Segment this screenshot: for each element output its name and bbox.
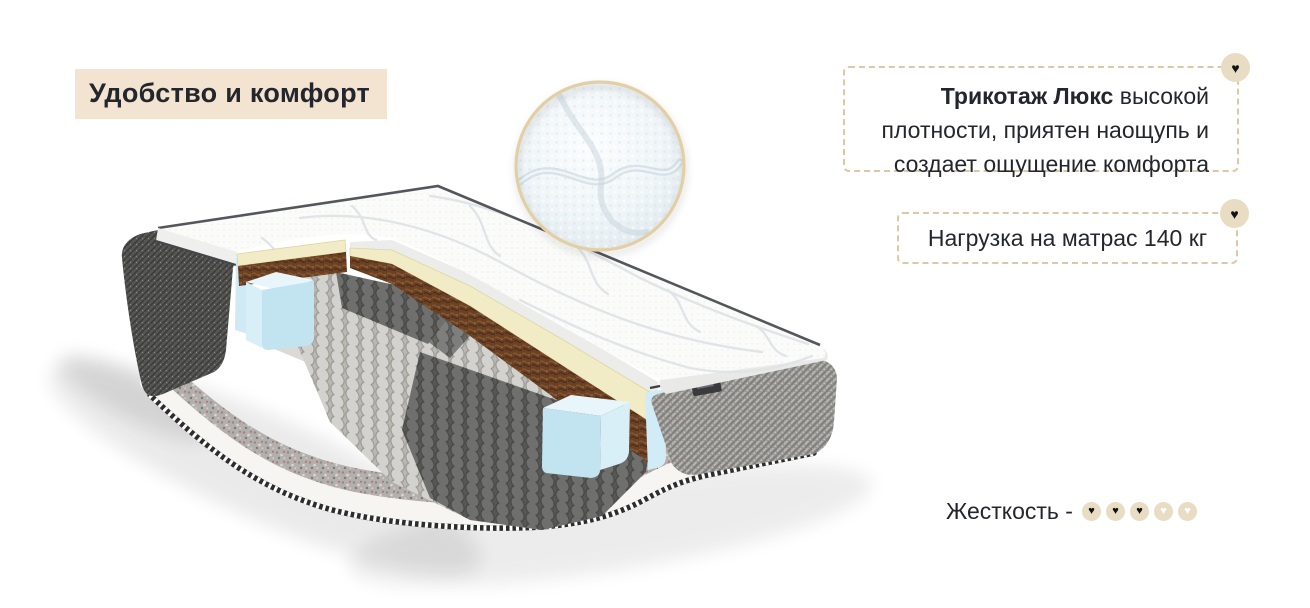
edge-support-foam-block <box>246 272 314 350</box>
hardness-heart-empty-icon: ♥ <box>1154 502 1173 521</box>
hardness-row: Жесткость - ♥♥♥♥♥ <box>946 494 1197 528</box>
load-text: Нагрузка на матрас 140 кг <box>928 221 1207 255</box>
hardness-heart-filled-icon: ♥ <box>1082 502 1101 521</box>
hardness-heart-filled-icon: ♥ <box>1106 502 1125 521</box>
heart-badge-icon: ♥ <box>1221 53 1250 82</box>
feature-callout-box: ♥ Трикотаж Люкс высокой плотности, прият… <box>843 66 1239 172</box>
page-title: Удобство и комфорт <box>75 69 387 119</box>
page: { "page": { "width": 1310, "height": 608… <box>0 0 1310 608</box>
hardness-heart-empty-icon: ♥ <box>1178 502 1197 521</box>
fabric-texture-magnifier <box>516 82 684 250</box>
hardness-rating: ♥♥♥♥♥ <box>1082 502 1197 521</box>
hardness-heart-filled-icon: ♥ <box>1130 502 1149 521</box>
side-panel-left <box>122 228 237 396</box>
hardness-label: Жесткость - <box>946 498 1073 525</box>
feature-text-bold: Трикотаж Люкс <box>941 83 1114 109</box>
heart-badge-icon: ♥ <box>1220 199 1249 228</box>
load-callout-box: ♥ Нагрузка на матрас 140 кг <box>897 212 1238 264</box>
